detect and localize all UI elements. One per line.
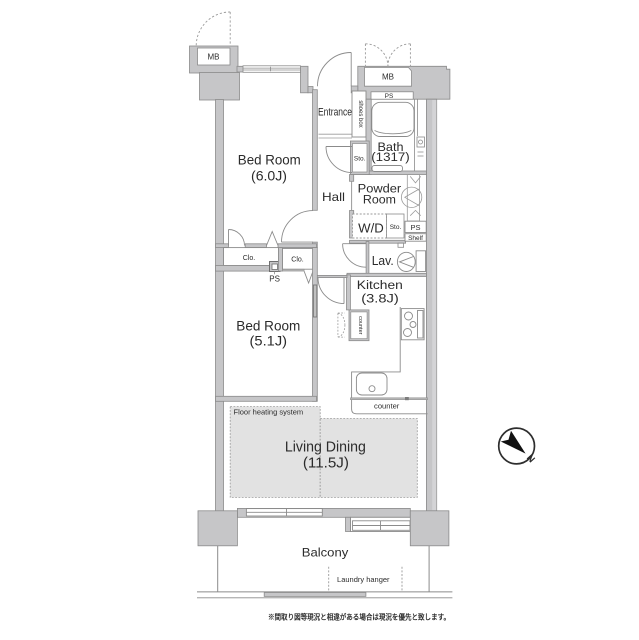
svg-text:Laundry hanger: Laundry hanger xyxy=(337,575,390,584)
svg-text:Clo.: Clo. xyxy=(291,257,304,264)
svg-text:※間取り図等現況と相違がある場合は現況を優先と致します。: ※間取り図等現況と相違がある場合は現況を優先と致します。 xyxy=(268,613,450,622)
svg-text:Floor heating system: Floor heating system xyxy=(234,408,304,417)
svg-text:PS: PS xyxy=(385,93,394,100)
svg-text:Hall: Hall xyxy=(322,190,345,204)
svg-text:PS: PS xyxy=(410,223,420,232)
svg-text:Lav.: Lav. xyxy=(372,253,394,268)
svg-text:Shelf: Shelf xyxy=(408,235,423,242)
svg-text:PS: PS xyxy=(269,275,280,284)
svg-text:counter: counter xyxy=(374,403,400,410)
svg-text:(11.5J): (11.5J) xyxy=(303,455,349,471)
svg-text:Clo.: Clo. xyxy=(243,255,256,262)
svg-text:Balcony: Balcony xyxy=(302,546,349,560)
svg-text:Sto.: Sto. xyxy=(354,156,366,163)
svg-text:MB: MB xyxy=(382,73,394,82)
svg-text:Sto.: Sto. xyxy=(390,224,402,231)
svg-text:Living Dining: Living Dining xyxy=(285,440,366,456)
svg-text:W/D: W/D xyxy=(358,221,384,236)
svg-text:Bed Room: Bed Room xyxy=(238,152,301,168)
svg-text:Kitchen: Kitchen xyxy=(357,278,403,292)
svg-text:(1317): (1317) xyxy=(371,150,410,164)
svg-text:shoes box: shoes box xyxy=(357,100,363,127)
svg-text:MB: MB xyxy=(208,53,220,62)
svg-text:Entrance: Entrance xyxy=(318,107,352,119)
svg-text:counter: counter xyxy=(357,316,363,335)
svg-text:Room: Room xyxy=(363,193,396,207)
svg-text:(3.8J): (3.8J) xyxy=(361,292,399,306)
svg-text:(5.1J): (5.1J) xyxy=(250,333,288,349)
svg-text:(6.0J): (6.0J) xyxy=(251,168,287,184)
svg-text:Bed Room: Bed Room xyxy=(236,317,300,333)
